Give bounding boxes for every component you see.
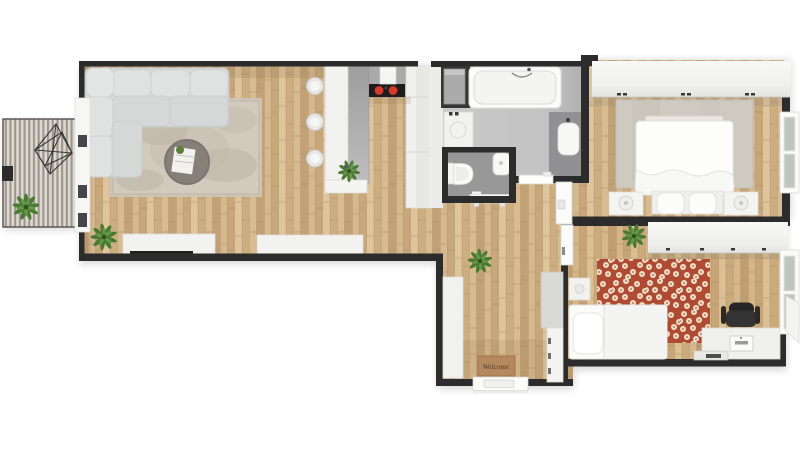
- svg-text:Welcome: Welcome: [483, 362, 510, 371]
